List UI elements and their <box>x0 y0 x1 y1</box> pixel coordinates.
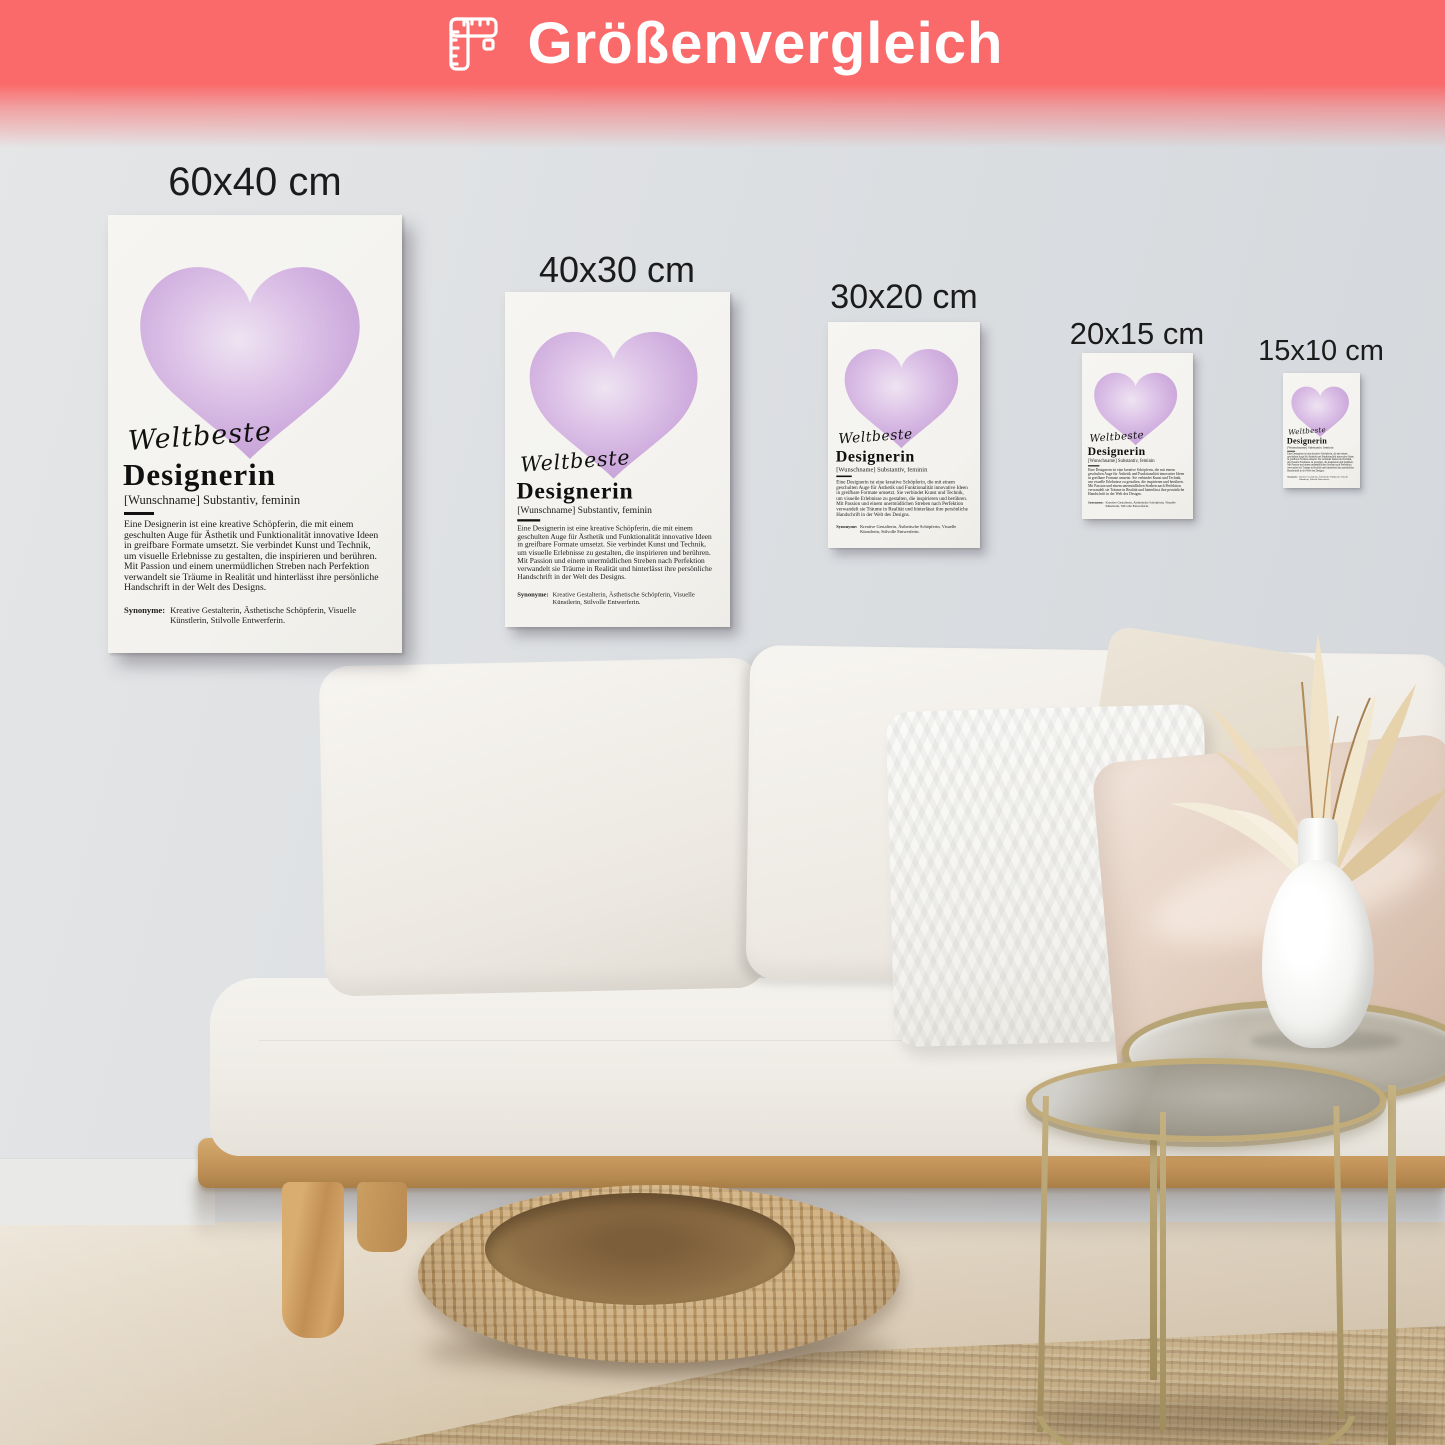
poster-paper: Weltbeste Designerin [Wunschname] Substa… <box>828 322 980 548</box>
poster-subtitle: [Wunschname] Substantiv, feminin <box>836 466 927 474</box>
poster-synonyms-text: Kreative Gestalterin, Ästhetische Schöpf… <box>552 590 717 605</box>
poster-synonyms: Synonyme: Kreative Gestalterin, Ästhetis… <box>124 605 386 625</box>
gold-table-small-top <box>1026 1058 1386 1142</box>
poster-subtitle: [Wunschname] Substantiv, feminin <box>124 493 300 508</box>
poster-body-text: Eine Designerin ist eine kreative Schöpf… <box>836 480 969 518</box>
poster-paper: Weltbeste Designerin [Wunschname] Substa… <box>1082 353 1193 519</box>
poster-body-text: Eine Designerin ist eine kreative Schöpf… <box>1287 453 1355 472</box>
size-label-20x15: 20x15 cm <box>1070 316 1204 352</box>
poster-body-text: Eine Designerin ist eine kreative Schöpf… <box>124 520 382 594</box>
sofa-back-cushion-left <box>319 657 768 996</box>
baseboard <box>0 1158 215 1225</box>
poster-20x15: Weltbeste Designerin [Wunschname] Substa… <box>1082 353 1193 519</box>
poster-subtitle: [Wunschname] Substantiv, feminin <box>1088 458 1155 464</box>
vase-body <box>1262 860 1374 1048</box>
gold-table-small-leg <box>1160 1112 1166 1430</box>
poster-synonyms: Synonyme: Kreative Gestalterin, Ästhetis… <box>1088 500 1187 508</box>
poster-paper: Weltbeste Designerin [Wunschname] Substa… <box>505 292 730 627</box>
scene: 60x40 cm 40x30 cm 30x20 cm 20x15 cm 15x1… <box>0 0 1445 1445</box>
gold-table-large-leg <box>1388 1085 1396 1445</box>
poster-divider <box>836 476 852 477</box>
white-vase <box>1262 818 1374 1048</box>
poster-divider <box>517 519 540 521</box>
banner-content: Größenvergleich <box>442 12 1004 76</box>
sofa-back-leg <box>357 1182 407 1252</box>
poster-30x20: Weltbeste Designerin [Wunschname] Substa… <box>828 322 980 548</box>
poster-title: Designerin <box>516 477 633 505</box>
size-label-40x30: 40x30 cm <box>539 249 695 291</box>
poster-divider <box>124 512 154 515</box>
poster-subtitle: [Wunschname] Substantiv, feminin <box>517 505 652 516</box>
poster-synonyms-text: Kreative Gestalterin, Ästhetische Schöpf… <box>170 605 386 625</box>
poster-40x30: Weltbeste Designerin [Wunschname] Substa… <box>505 292 730 627</box>
size-label-30x20: 30x20 cm <box>830 278 977 317</box>
poster-body-text: Eine Designerin ist eine kreative Schöpf… <box>517 525 714 581</box>
banner-title: Größenvergleich <box>528 15 1004 73</box>
poster-title: Designerin <box>836 447 915 466</box>
poster-divider <box>1287 451 1295 452</box>
poster-body-text: Eine Designerin ist eine kreative Schöpf… <box>1088 468 1186 496</box>
poster-synonyms-label: Synonyme: <box>124 605 165 625</box>
poster-synonyms: Synonyme: Kreative Gestalterin, Ästhetis… <box>1287 475 1356 480</box>
poster-title: Designerin <box>1088 444 1146 458</box>
poster-synonyms-label: Synonyme: <box>517 590 548 605</box>
poster-synonyms-label: Synonyme: <box>1088 500 1104 508</box>
size-label-15x10: 15x10 cm <box>1258 335 1384 368</box>
poster-synonyms-label: Synonyme: <box>836 524 857 534</box>
size-comparison-banner: Größenvergleich <box>0 0 1445 148</box>
poster-synonyms: Synonyme: Kreative Gestalterin, Ästhetis… <box>836 524 971 534</box>
poster-synonyms-label: Synonyme: <box>1287 475 1298 480</box>
poster-paper: Weltbeste Designerin [Wunschname] Substa… <box>1283 373 1360 488</box>
poster-title: Designerin <box>1287 436 1327 445</box>
poster-subtitle: [Wunschname] Substantiv, feminin <box>1287 446 1333 450</box>
poster-title: Designerin <box>123 457 276 493</box>
rattan-pouf <box>418 1185 900 1363</box>
poster-synonyms-text: Kreative Gestalterin, Ästhetische Schöpf… <box>860 524 972 534</box>
poster-15x10: Weltbeste Designerin [Wunschname] Substa… <box>1283 373 1360 488</box>
size-label-60x40: 60x40 cm <box>168 160 341 205</box>
poster-synonyms-text: Kreative Gestalterin, Ästhetische Schöpf… <box>1299 475 1356 480</box>
poster-synonyms-text: Kreative Gestalterin, Ästhetische Schöpf… <box>1105 500 1187 508</box>
poster-paper: Weltbeste Designerin [Wunschname] Substa… <box>108 215 402 653</box>
ruler-icon <box>442 12 506 76</box>
poster-synonyms: Synonyme: Kreative Gestalterin, Ästhetis… <box>517 590 717 605</box>
sofa-front-leg <box>282 1182 344 1338</box>
poster-divider <box>1088 465 1099 466</box>
rattan-pouf-top <box>485 1193 795 1305</box>
poster-60x40: Weltbeste Designerin [Wunschname] Substa… <box>108 215 402 653</box>
